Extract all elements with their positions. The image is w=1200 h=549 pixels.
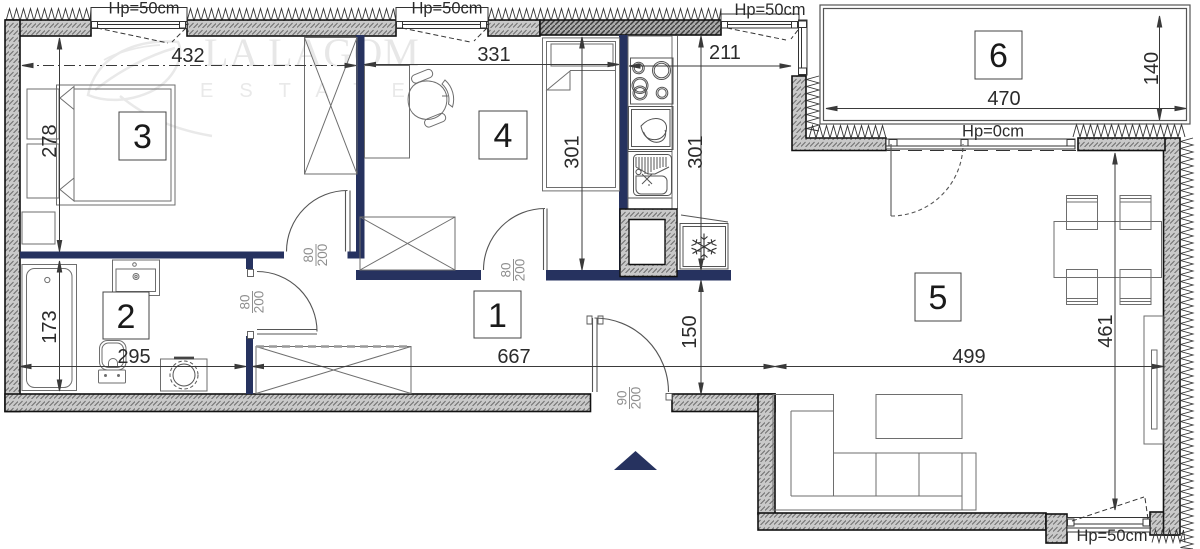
svg-text:278: 278 [39,124,61,157]
svg-text:Hp=0cm: Hp=0cm [962,123,1024,141]
svg-text:295: 295 [117,346,150,368]
svg-text:200: 200 [513,259,528,282]
svg-text:ESTATE: ESTATE [200,80,431,102]
svg-text:140: 140 [1141,52,1163,85]
svg-text:499: 499 [952,346,985,368]
svg-text:173: 173 [39,310,61,343]
svg-text:Hp=50cm: Hp=50cm [1076,527,1147,545]
svg-text:6: 6 [989,37,1008,75]
svg-text:3: 3 [133,118,152,156]
svg-text:331: 331 [477,44,510,66]
svg-text:461: 461 [1095,314,1117,347]
svg-text:80: 80 [238,294,253,309]
svg-text:150: 150 [679,315,701,348]
svg-text:301: 301 [562,135,584,168]
svg-text:200: 200 [315,244,330,267]
svg-text:1: 1 [488,297,507,335]
svg-text:2: 2 [117,298,136,336]
svg-text:200: 200 [252,291,267,314]
svg-text:667: 667 [497,346,530,368]
svg-text:301: 301 [685,135,707,168]
svg-text:80: 80 [301,247,316,262]
svg-text:80: 80 [499,262,514,277]
svg-text:470: 470 [987,88,1020,110]
svg-text:90: 90 [615,390,630,405]
svg-text:200: 200 [629,387,644,410]
svg-text:211: 211 [709,42,741,64]
svg-text:Hp=50cm: Hp=50cm [734,1,805,19]
svg-text:Hp=50cm: Hp=50cm [411,0,482,18]
svg-text:Hp=50cm: Hp=50cm [108,0,179,18]
svg-text:432: 432 [171,45,204,67]
svg-text:4: 4 [494,117,513,155]
svg-text:5: 5 [929,279,948,317]
